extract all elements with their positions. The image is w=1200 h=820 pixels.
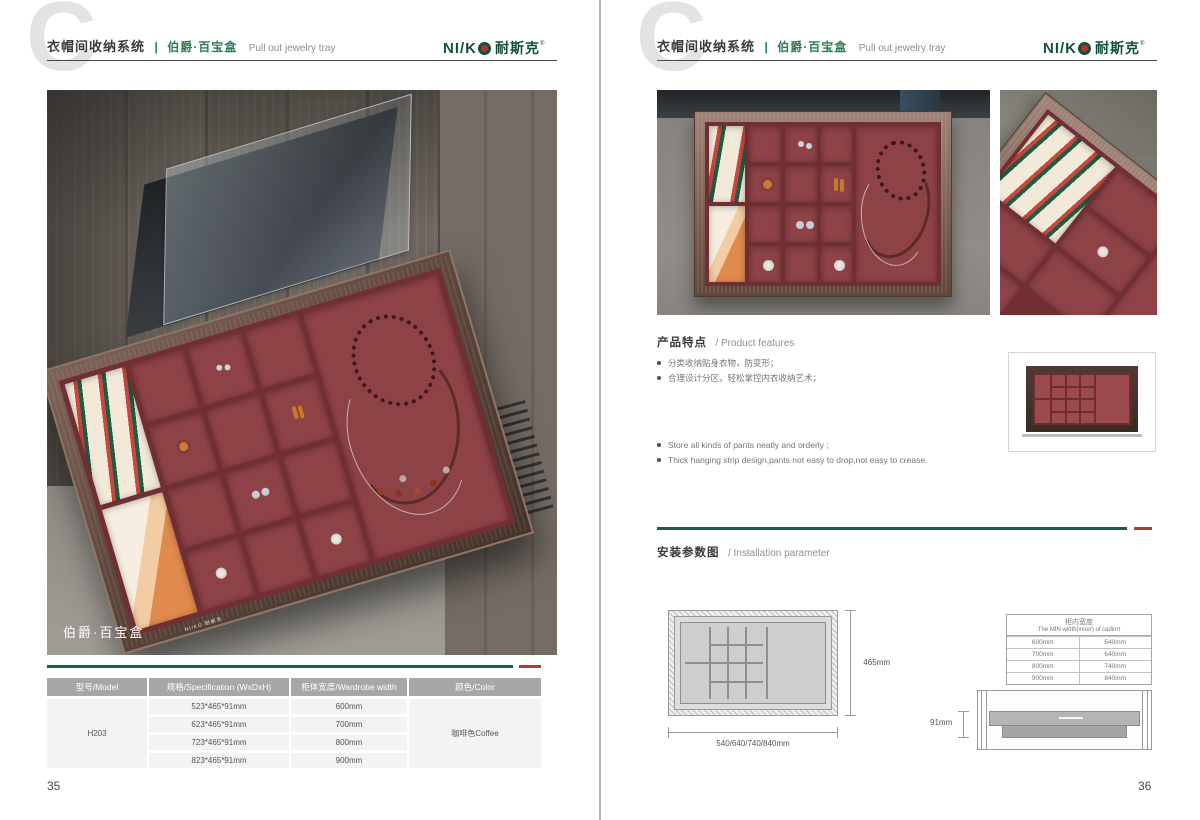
table-row: 700mm 640mm [1007, 648, 1151, 660]
feature-text: 合理设计分区，轻松掌控内衣收纳艺术； [668, 372, 821, 384]
feature-item: 合理设计分区，轻松掌控内衣收纳艺术； [657, 370, 821, 385]
col-header-width: 柜体宽度/Wardrobe width [291, 678, 407, 696]
compartment [785, 246, 817, 282]
height-dimension-label: 91mm [930, 718, 952, 727]
feature-text: 分类收纳贴身衣物，防变形； [668, 357, 779, 369]
features-list-zh: 分类收纳贴身衣物，防变形； 合理设计分区，轻松掌控内衣收纳艺术； [657, 355, 821, 385]
separator-red [519, 665, 541, 668]
header-product-en: Pull out jewelry tray [249, 43, 336, 54]
height-dimension-line [963, 711, 964, 737]
compartment [245, 315, 315, 388]
flower-earring-icon [1095, 244, 1110, 259]
spec-cell: 823*465*91mm [149, 753, 289, 768]
brand-mark [1059, 717, 1083, 719]
compartment [300, 503, 370, 576]
earrings-icon [216, 364, 223, 371]
mini-tray-render [1026, 366, 1138, 432]
page-number-left: 35 [47, 779, 60, 793]
compartment [186, 537, 256, 610]
logo-latin: NI/K [1043, 40, 1077, 57]
tassel-icon [291, 405, 299, 419]
installation-heading-en: / Installation parameter [728, 548, 830, 559]
logo-cn: 耐斯克 [495, 38, 540, 58]
compartment [1081, 413, 1094, 424]
width-dimension-label: 540/640/740/840mm [668, 739, 838, 748]
compartment [243, 520, 313, 593]
logo-cn: 耐斯克 [1095, 38, 1140, 58]
page-number-right: 36 [1138, 779, 1151, 793]
render-shadow [1022, 434, 1142, 437]
compartment [225, 458, 295, 531]
compartment [785, 126, 817, 162]
compartment [282, 440, 352, 513]
heart-earrings-icon [251, 489, 261, 499]
photo-product-label: 伯爵·百宝盒 [63, 622, 144, 641]
compartment [749, 126, 781, 162]
header-title: 衣帽间收纳系统 | 伯爵·百宝盒 Pull out jewelry tray [657, 36, 945, 56]
header-rule [47, 60, 557, 61]
min-width-table-header: 柜内宽度 The MIN width(inner) of cadinrt [1007, 615, 1151, 636]
separator-green [657, 527, 1127, 530]
cabinet-side-panel [981, 691, 987, 749]
pendant-icon [763, 180, 772, 189]
header-title-zh: 衣帽间收纳系统 [657, 39, 755, 54]
width-cell: 800mm [291, 735, 407, 750]
table-row: 800mm 740mm [1007, 660, 1151, 672]
earrings-icon [798, 141, 804, 147]
compartment [1081, 388, 1094, 399]
width-dimension-line [668, 732, 838, 733]
feature-text: Store all kinds of pants neatly and orde… [668, 440, 829, 450]
compartment [167, 475, 237, 548]
flower-earring-icon [763, 260, 774, 271]
table-title-en: The MIN width(inner) of cadinrt [1007, 627, 1151, 633]
model-cell: H203 [47, 699, 147, 768]
logo-registered-mark: ® [540, 41, 544, 47]
scarf-compartment [709, 206, 745, 282]
spec-table: 型号/Model 规格/Specification (WxDxH) 柜体宽度/W… [47, 678, 541, 768]
table-row: 900mm 840mm [1007, 672, 1151, 684]
wardrobe-photo: NI/KO 耐斯克 [47, 90, 557, 655]
col-header-model: 型号/Model [47, 678, 147, 696]
flower-earring-icon [834, 260, 845, 271]
tray-interior [680, 622, 826, 704]
header-right: C 衣帽间收纳系统 | 伯爵·百宝盒 Pull out jewelry tray… [610, 0, 1200, 88]
separator-green [47, 665, 513, 668]
tray-under-profile [1002, 725, 1127, 738]
bullet-icon [657, 376, 661, 380]
width-cell: 600mm [291, 699, 407, 714]
spec-cell: 723*465*91mm [149, 735, 289, 750]
compartment [785, 206, 817, 242]
bullet-icon [657, 458, 661, 462]
pendant-icon [179, 441, 190, 452]
sideview-drawing: 91mm [977, 690, 1152, 750]
width-cell: 700mm [291, 717, 407, 732]
compartment [149, 412, 219, 485]
feature-text: Thick hanging strip design,pants not eas… [668, 455, 927, 465]
table-title-zh: 柜内宽度 [1007, 617, 1151, 627]
separator-red [1134, 527, 1152, 530]
feature-item: 分类收纳贴身衣物，防变形； [657, 355, 821, 370]
compartment [749, 166, 781, 202]
open-area [766, 627, 821, 699]
section-separator [47, 665, 541, 668]
features-heading-en: / Product features [715, 338, 794, 349]
header-left: C 衣帽间收纳系统 | 伯爵·百宝盒 Pull out jewelry tray… [0, 0, 600, 88]
compartment [1035, 400, 1050, 423]
header-product-zh: 伯爵·百宝盒 [167, 40, 237, 54]
compartment [130, 349, 200, 422]
scarf-compartment [709, 126, 745, 202]
compartment [187, 332, 257, 405]
compartment [1067, 388, 1080, 399]
installation-heading: 安装参数图 / Installation parameter [657, 543, 830, 561]
header-rule [657, 60, 1157, 61]
compartment [1052, 413, 1065, 424]
compartment [821, 126, 853, 162]
bullet-icon [657, 361, 661, 365]
installation-heading-zh: 安装参数图 [657, 547, 720, 559]
color-cell: 咖啡色Coffee [409, 699, 541, 768]
spec-cell: 523*465*91mm [149, 699, 289, 714]
header-divider: | [154, 40, 157, 54]
bullet-icon [657, 443, 661, 447]
header-divider: | [764, 40, 767, 54]
header-title: 衣帽间收纳系统 | 伯爵·百宝盒 Pull out jewelry tray [47, 36, 335, 56]
logo-latin: NI/K [443, 40, 477, 57]
compartment [1052, 400, 1065, 411]
compartment [749, 246, 781, 282]
topview-drawing: 465mm 540/640/740/840mm [668, 610, 838, 716]
table-row: 600mm 540mm [1007, 636, 1151, 648]
header-title-zh: 衣帽间收纳系统 [47, 39, 145, 54]
catalog-spread: C 衣帽间收纳系统 | 伯爵·百宝盒 Pull out jewelry tray… [0, 0, 1200, 820]
width-cell: 900mm [291, 753, 407, 768]
compartment [821, 246, 853, 282]
header-product-en: Pull out jewelry tray [859, 43, 946, 54]
compartment [821, 166, 853, 202]
page-gutter [599, 0, 601, 820]
tray-compartments [705, 122, 941, 286]
compartment [1067, 400, 1080, 411]
compartment-grid [685, 627, 763, 699]
compartment [1052, 388, 1065, 399]
cabinet-side-panel [1142, 691, 1148, 749]
compartment [206, 395, 276, 468]
features-list-en: Store all kinds of pants neatly and orde… [657, 437, 927, 467]
open-compartment [1096, 375, 1129, 423]
logo-o-icon [1078, 42, 1091, 55]
min-width-table: 柜内宽度 The MIN width(inner) of cadinrt 600… [1006, 614, 1152, 685]
header-product-zh: 伯爵·百宝盒 [777, 40, 847, 54]
compartment [1067, 413, 1080, 424]
heart-earrings-icon [796, 221, 804, 229]
features-heading-zh: 产品特点 [657, 337, 707, 349]
jewelry-tray [694, 111, 952, 297]
compartment [1081, 400, 1094, 411]
feature-item: Thick hanging strip design,pants not eas… [657, 452, 927, 467]
compartment [1052, 375, 1065, 386]
features-heading: 产品特点 / Product features [657, 333, 794, 351]
col-header-color: 颜色/Color [409, 678, 541, 696]
flower-earring-icon [215, 566, 229, 580]
tray-compartments [1033, 373, 1131, 425]
compartment [749, 206, 781, 242]
nisko-logo: NI/K 耐斯克 ® [1043, 38, 1144, 58]
nisko-logo: NI/K 耐斯克 ® [443, 38, 544, 58]
compartment [1067, 375, 1080, 386]
compartment [1081, 375, 1094, 386]
depth-dimension-line [850, 610, 851, 716]
open-compartment [856, 126, 937, 282]
depth-dimension-label: 465mm [863, 658, 890, 667]
product-render-box [1008, 352, 1156, 452]
logo-registered-mark: ® [1140, 41, 1144, 47]
tray-corner-photo [1000, 90, 1157, 315]
logo-o-icon [478, 42, 491, 55]
section-separator [657, 527, 1152, 530]
tassel-icon [834, 178, 838, 191]
compartment [785, 166, 817, 202]
feature-item: Store all kinds of pants neatly and orde… [657, 437, 927, 452]
compartment [1035, 375, 1050, 398]
compartment [821, 206, 853, 242]
col-header-spec: 规格/Specification (WxDxH) [149, 678, 289, 696]
tray-topview-photo [657, 90, 990, 315]
compartment [263, 378, 333, 451]
flower-earring-icon [329, 532, 343, 546]
spec-cell: 623*465*91mm [149, 717, 289, 732]
tray-profile [989, 711, 1140, 726]
